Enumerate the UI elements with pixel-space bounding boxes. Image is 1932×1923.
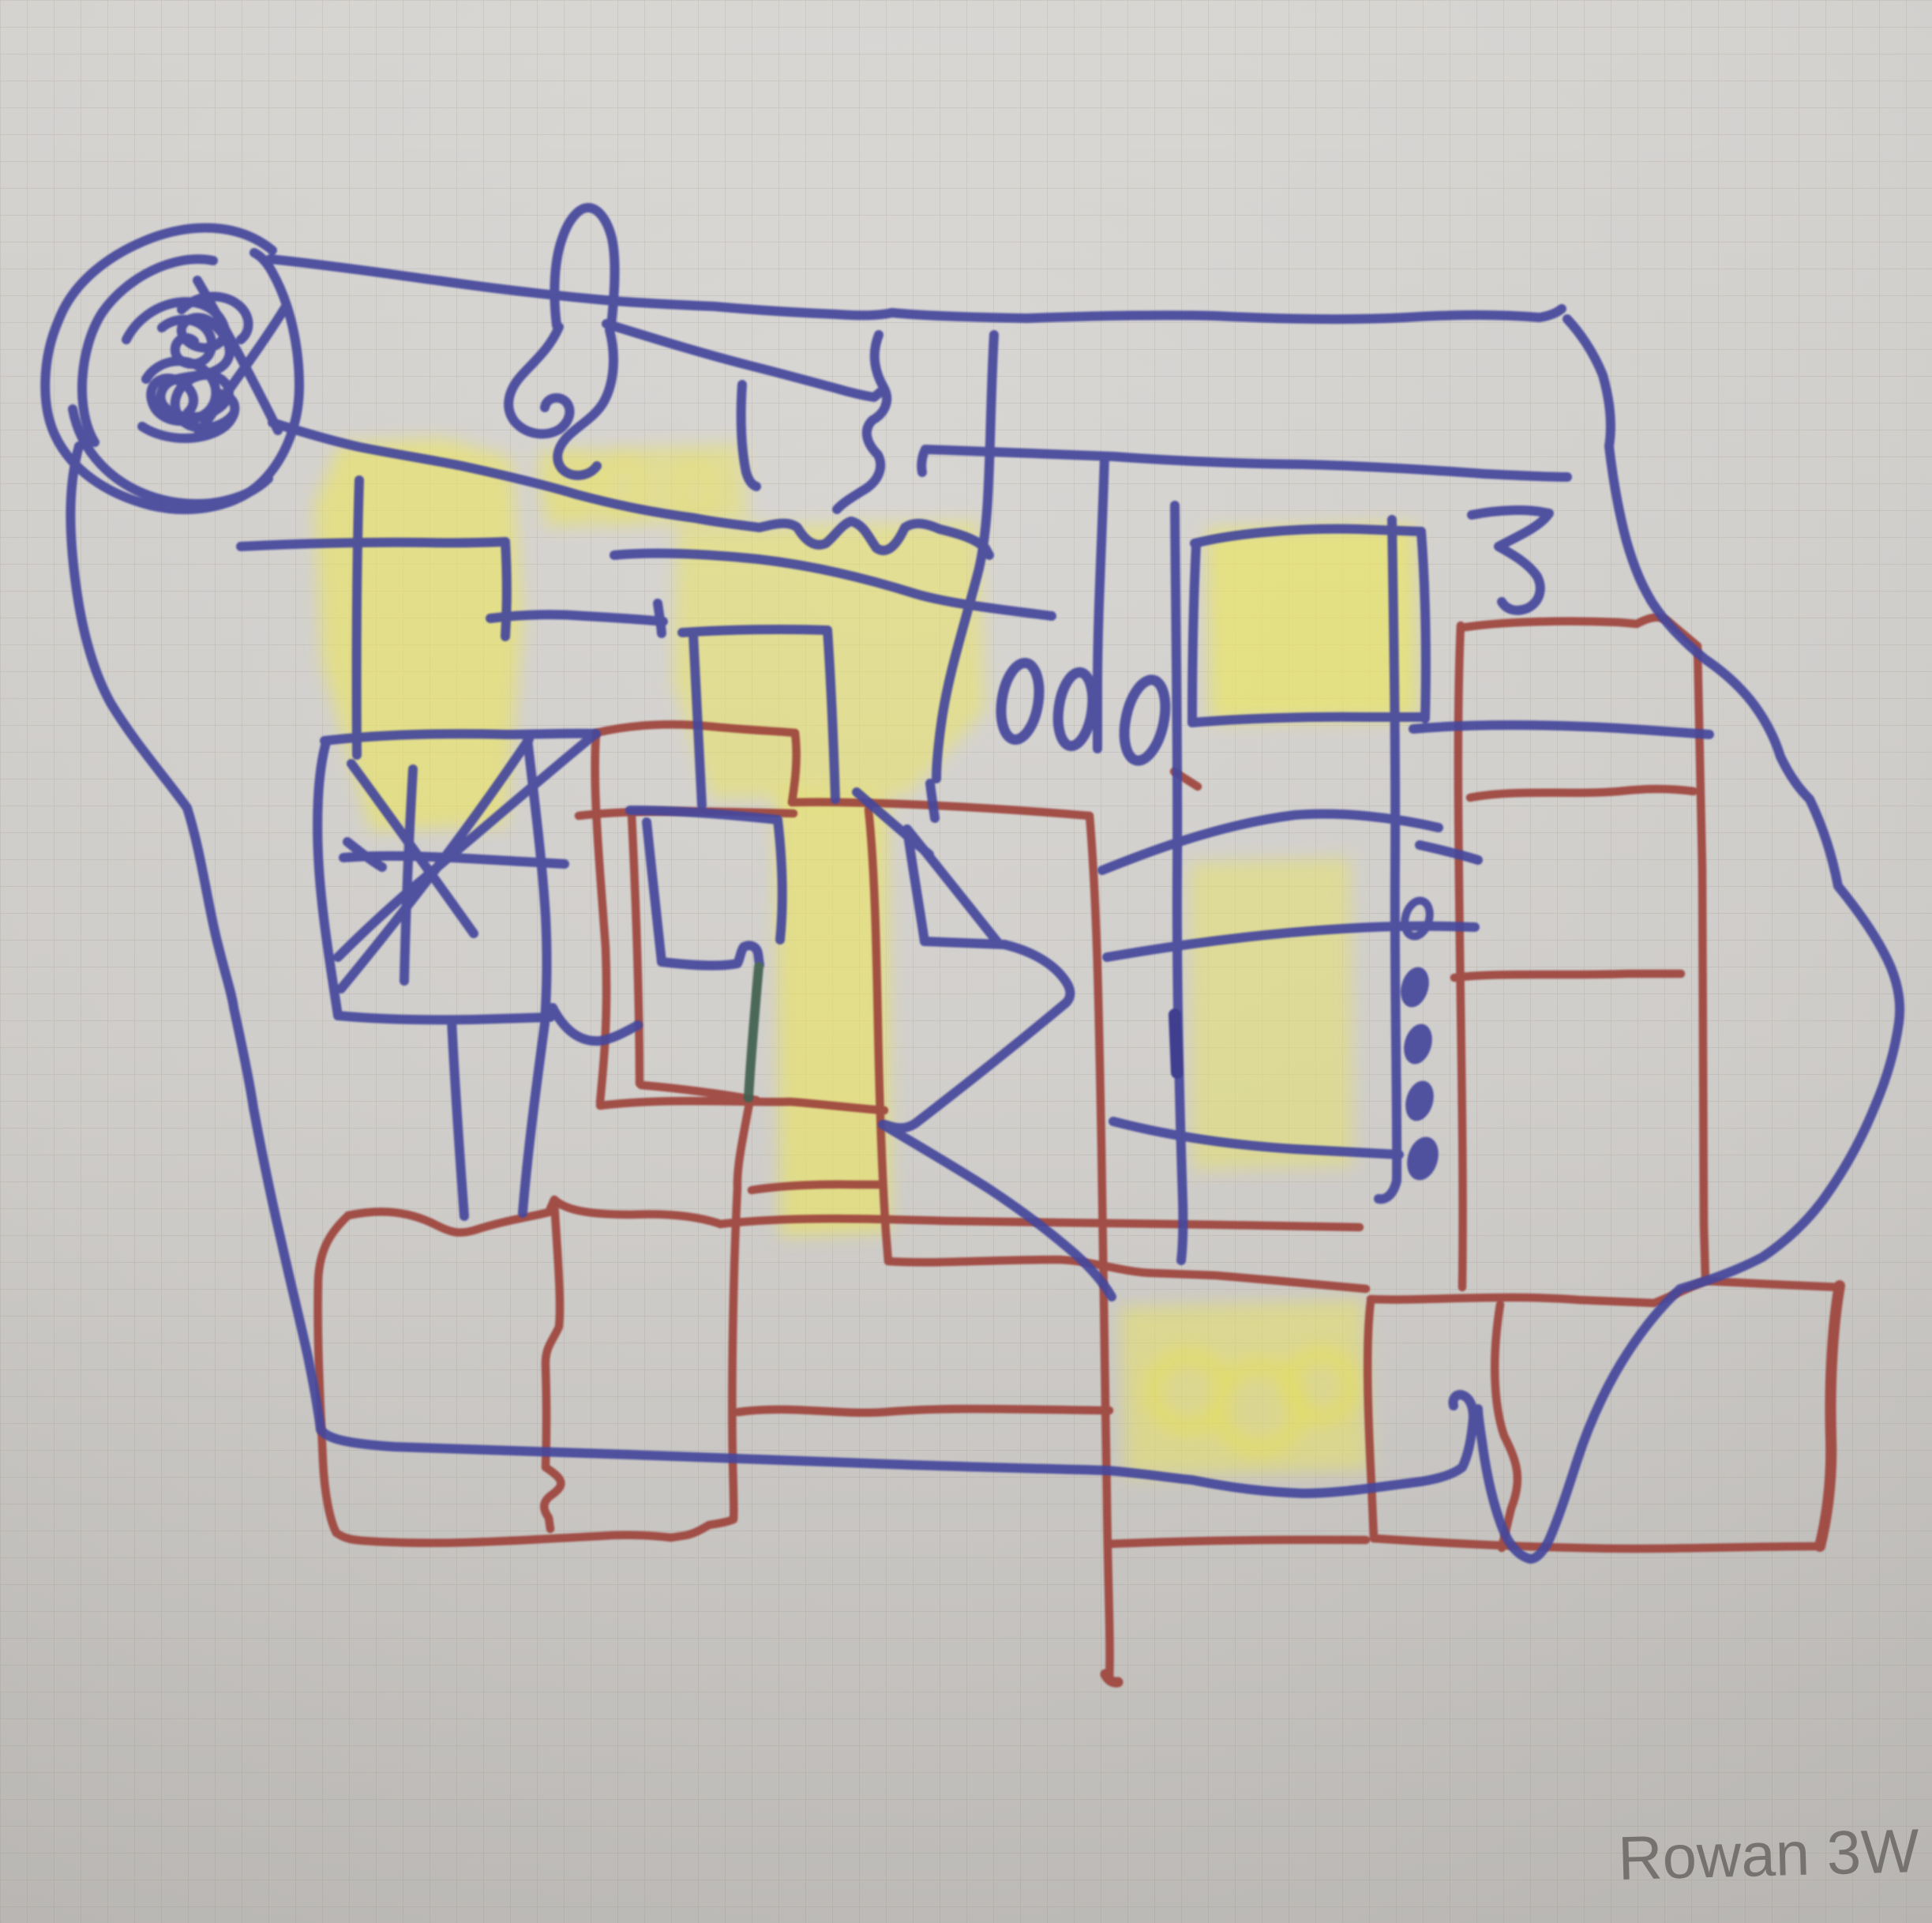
svg-text:Rowan 3W: Rowan 3W xyxy=(1617,1816,1920,1893)
